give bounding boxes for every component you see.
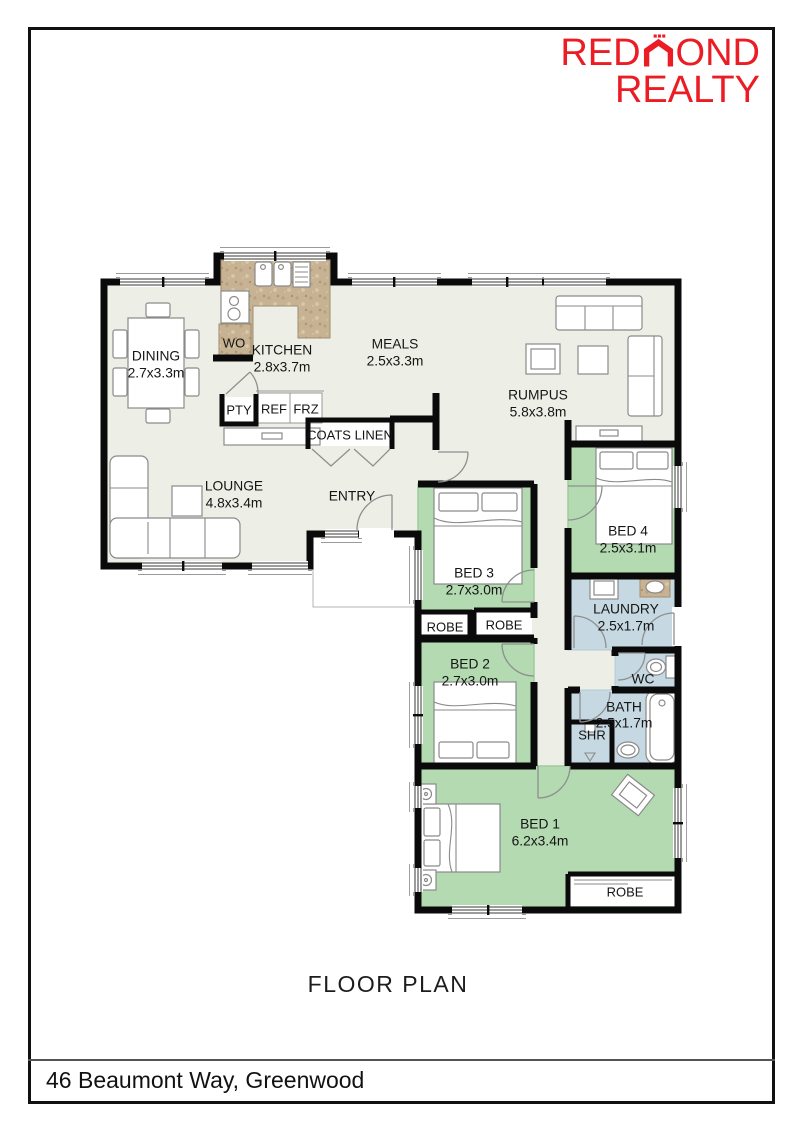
plan-title: FLOOR PLAN	[28, 971, 748, 998]
footer-divider	[28, 1059, 775, 1061]
label-bed1-dims: 6.2x3.4m	[512, 834, 569, 849]
label-bath: BATH	[606, 700, 642, 715]
label-rumpus: RUMPUS	[508, 388, 568, 403]
lounge-ottoman	[172, 486, 202, 516]
entry-door-opening	[359, 528, 394, 539]
rumpus-sofa	[556, 296, 642, 330]
label-robe-2: ROBE	[486, 617, 523, 632]
label-fridge: REF	[261, 401, 287, 416]
label-lounge-dims: 4.8x3.4m	[206, 496, 263, 511]
label-wc: WC	[632, 672, 655, 687]
dish-drainer	[293, 262, 310, 287]
label-lounge: LOUNGE	[205, 479, 263, 494]
coffee-table	[578, 346, 608, 374]
washing-machine	[590, 577, 618, 599]
rumpus-armchair	[526, 344, 560, 374]
cooktop	[221, 291, 249, 323]
label-coats-linen: COATS LINEN	[307, 427, 393, 442]
rumpus-sofa2	[628, 336, 662, 416]
label-pantry: PTY	[226, 402, 252, 417]
label-laundry: LAUNDRY	[593, 602, 659, 617]
label-laundry-dims: 2.5x1.7m	[598, 619, 655, 634]
label-bed2: BED 2	[450, 657, 490, 672]
label-bed2-dims: 2.7x3.0m	[442, 674, 499, 689]
label-bed4: BED 4	[608, 524, 648, 539]
label-rumpus-dims: 5.8x3.8m	[510, 405, 567, 420]
label-robe-3: ROBE	[607, 884, 644, 899]
label-bed4-dims: 2.5x3.1m	[600, 541, 657, 556]
label-bed3-dims: 2.7x3.0m	[446, 583, 503, 598]
label-kitchen-dims: 2.8x3.7m	[254, 360, 311, 375]
label-meals-dims: 2.5x3.3m	[367, 354, 424, 369]
label-entry: ENTRY	[329, 489, 376, 504]
label-kitchen: KITCHEN	[252, 343, 313, 358]
label-wall-oven: WO	[223, 335, 245, 350]
label-freezer: FRZ	[293, 401, 318, 416]
label-meals: MEALS	[372, 337, 419, 352]
label-bed1: BED 1	[520, 817, 560, 832]
bath-basin	[617, 742, 639, 758]
porch	[313, 537, 417, 607]
label-dining: DINING	[132, 349, 180, 364]
property-address: 46 Beaumont Way, Greenwood	[46, 1067, 364, 1094]
laundry-trough	[640, 577, 670, 597]
floorplan-page: REDOND REALTY	[0, 0, 800, 1131]
label-robe-1: ROBE	[427, 619, 464, 634]
label-bed3: BED 3	[454, 566, 494, 581]
label-shower: SHR	[578, 727, 605, 742]
floorplan-drawing: DINING 2.7x3.3m KITCHEN 2.8x3.7m WO MEAL…	[0, 0, 800, 1131]
tv-cabinet	[576, 426, 642, 442]
label-dining-dims: 2.7x3.3m	[128, 366, 185, 381]
bed2-bed	[434, 682, 516, 764]
